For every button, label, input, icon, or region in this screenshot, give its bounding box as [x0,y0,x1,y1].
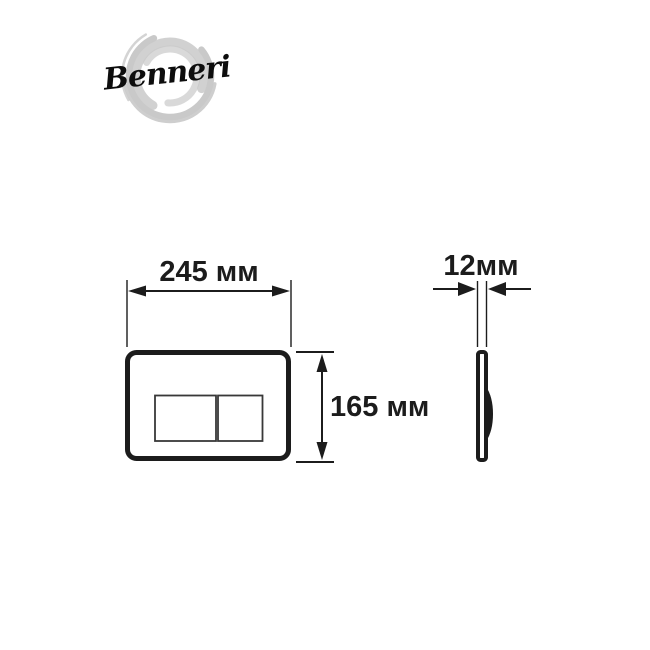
arrowhead-inward-right-icon [488,282,506,296]
flush-button-left [155,396,216,442]
arrowhead-down-icon [317,442,328,460]
arrowhead-right-icon [272,286,290,297]
width-dimension: 245 мм [127,256,291,347]
dimension-drawing: 245 мм 165 мм 12мм [0,0,650,650]
depth-dimension: 12мм [433,250,531,347]
width-label: 245 мм [159,256,258,288]
side-profile-outline [478,352,486,460]
front-view [128,353,289,459]
side-profile-button-bump [486,387,493,442]
flush-button-right [218,396,263,442]
side-view [478,352,493,460]
height-dimension: 165 мм [296,352,429,462]
height-label: 165 мм [330,391,429,423]
arrowhead-left-icon [128,286,146,297]
product-drawing-page: Benneri 245 мм 165 мм [0,0,650,650]
arrowhead-inward-left-icon [458,282,476,296]
arrowhead-up-icon [317,354,328,372]
depth-label: 12мм [443,250,518,282]
